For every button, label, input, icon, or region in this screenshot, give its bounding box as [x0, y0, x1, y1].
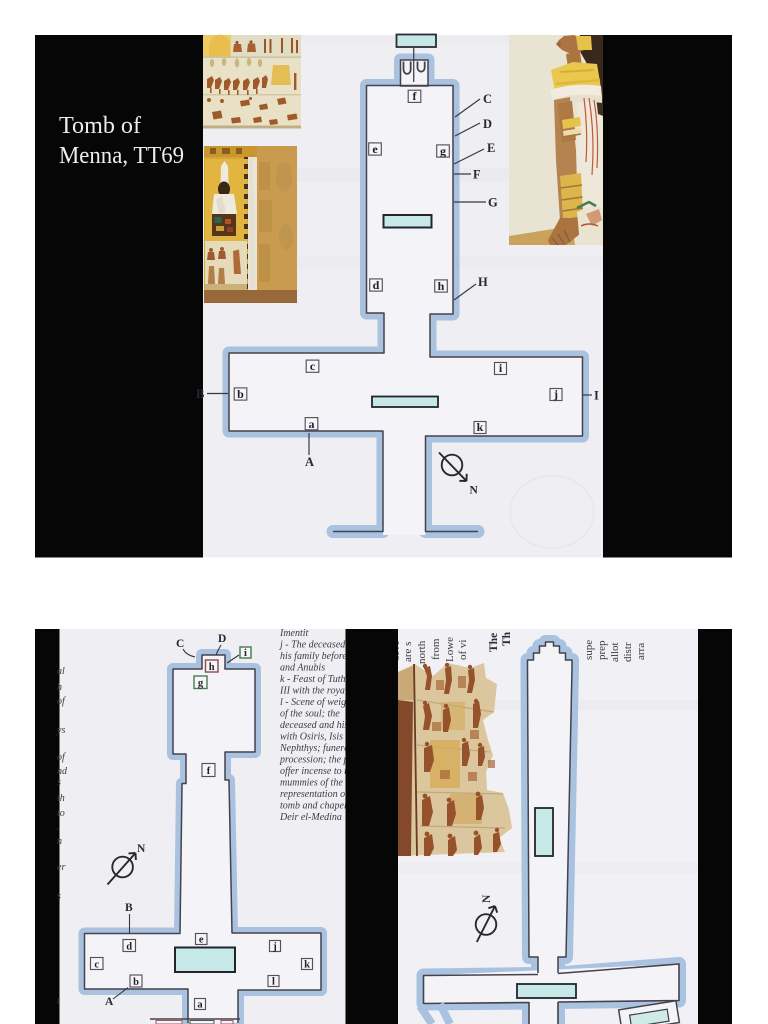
svg-text:e: e: [372, 142, 378, 156]
svg-text:representation of: representation of: [280, 789, 349, 800]
svg-text:A: A: [105, 996, 114, 1008]
svg-text:t: t: [57, 996, 60, 1007]
svg-text:c: c: [310, 359, 316, 373]
svg-text:al: al: [57, 666, 65, 677]
svg-text:of: of: [57, 696, 66, 707]
svg-text:his family before: his family before: [280, 651, 347, 662]
svg-text:c: c: [94, 960, 99, 971]
svg-text:The: The: [488, 633, 500, 652]
svg-text:and Anubis: and Anubis: [280, 663, 325, 674]
svg-text:of the soul; the: of the soul; the: [280, 709, 340, 720]
svg-text:a: a: [309, 417, 315, 431]
svg-text:supe: supe: [583, 640, 595, 660]
svg-text:C: C: [483, 92, 492, 106]
svg-text:H: H: [478, 275, 488, 289]
svg-text:N: N: [137, 843, 146, 855]
svg-text:d: d: [373, 278, 380, 292]
svg-text:D: D: [483, 117, 492, 131]
svg-text:er: er: [57, 862, 65, 873]
svg-text:procession; the p: procession; the p: [279, 755, 349, 766]
svg-text:l - Scene of weigh: l - Scene of weigh: [280, 697, 351, 708]
svg-text:B: B: [125, 902, 133, 914]
svg-text:allot: allot: [609, 642, 621, 662]
svg-text:D: D: [218, 633, 226, 645]
svg-text:offer incense to th: offer incense to th: [280, 766, 352, 777]
svg-text:G: G: [488, 196, 498, 210]
svg-text:s: s: [57, 891, 61, 902]
svg-text:j: j: [553, 387, 558, 401]
svg-text:Th: Th: [501, 631, 513, 646]
svg-text:are s: are s: [402, 642, 414, 662]
svg-text:g: g: [198, 678, 204, 689]
svg-text:F: F: [473, 168, 481, 182]
svg-text:h: h: [438, 279, 445, 293]
svg-text:n: n: [57, 836, 62, 847]
svg-text:Imentit: Imentit: [279, 628, 309, 639]
svg-text:N: N: [470, 485, 479, 497]
svg-text:deceased and his: deceased and his: [280, 720, 348, 731]
svg-text:d: d: [126, 942, 132, 953]
svg-text:from: from: [430, 638, 442, 660]
svg-text:I: I: [594, 389, 599, 403]
svg-text:arra: arra: [635, 643, 647, 660]
svg-text:k: k: [477, 420, 484, 434]
svg-text:E: E: [487, 141, 495, 155]
svg-text:to: to: [57, 808, 65, 819]
svg-text:th: th: [57, 793, 65, 804]
svg-text:of: of: [57, 752, 66, 763]
svg-text:C: C: [176, 638, 184, 650]
svg-text:mummies of the d: mummies of the d: [280, 778, 351, 789]
svg-text:prep: prep: [596, 640, 608, 660]
svg-text:Menna, TT69: Menna, TT69: [59, 143, 184, 169]
svg-text:tomb and chapel: tomb and chapel: [280, 801, 347, 812]
svg-text:III with the royal: III with the royal: [279, 686, 348, 697]
svg-text:k: k: [304, 960, 310, 971]
svg-text:j - The deceased a: j - The deceased a: [278, 640, 353, 651]
svg-text:s: s: [57, 777, 61, 788]
svg-text:of vi: of vi: [457, 640, 469, 660]
svg-text:distr: distr: [622, 642, 634, 662]
svg-text:Lowe: Lowe: [444, 637, 456, 662]
svg-text:f: f: [207, 766, 211, 777]
svg-text:with Osiris, Isis a: with Osiris, Isis a: [280, 732, 351, 743]
svg-text:north: north: [416, 640, 428, 664]
svg-text:j: j: [272, 942, 277, 953]
svg-text:.: .: [57, 822, 60, 833]
svg-text:h: h: [57, 682, 62, 693]
svg-text:A: A: [305, 455, 314, 469]
svg-text:k - Feast of Tuthm: k - Feast of Tuthm: [280, 674, 353, 685]
svg-text:nd: nd: [57, 766, 68, 777]
svg-text:h: h: [209, 662, 215, 673]
svg-text:Nephthys; funera: Nephthys; funera: [279, 743, 349, 754]
svg-text:B: B: [196, 387, 204, 401]
svg-text:Deir el-Medina: Deir el-Medina: [279, 812, 342, 823]
svg-text:b: b: [237, 387, 244, 401]
svg-text:a: a: [197, 1000, 203, 1011]
svg-text:ys: ys: [56, 725, 65, 736]
svg-text:b: b: [133, 977, 139, 988]
svg-text:e: e: [199, 935, 204, 946]
svg-text:N: N: [481, 894, 493, 903]
svg-text:g: g: [440, 144, 446, 158]
svg-text:i: i: [244, 648, 247, 659]
svg-text:l: l: [272, 977, 275, 988]
svg-text:Tomb of: Tomb of: [59, 113, 141, 139]
